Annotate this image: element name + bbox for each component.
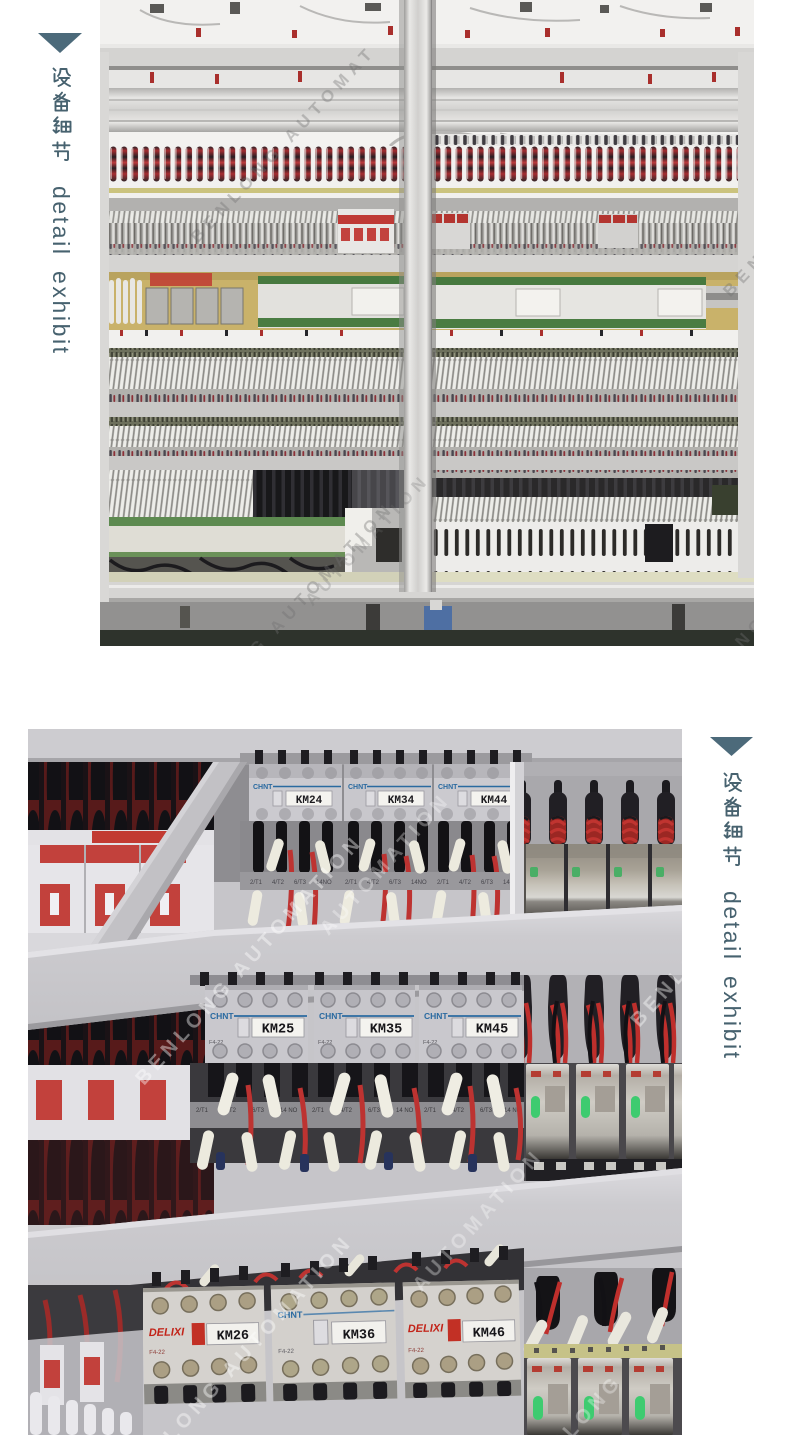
svg-text:CHNT: CHNT: [424, 1011, 448, 1021]
svg-text:CHNT: CHNT: [348, 784, 368, 791]
svg-text:6/T3: 6/T3: [480, 1108, 493, 1114]
svg-text:KM35: KM35: [370, 1023, 402, 1038]
svg-text:6/T3: 6/T3: [252, 1108, 265, 1114]
svg-text:F4-22: F4-22: [149, 1350, 165, 1356]
svg-text:CHNT: CHNT: [438, 784, 458, 791]
svg-text:CHNT: CHNT: [319, 1011, 343, 1021]
svg-text:KM46: KM46: [473, 1326, 506, 1342]
svg-text:KM25: KM25: [262, 1023, 294, 1038]
svg-text:DELIXI: DELIXI: [149, 1326, 186, 1339]
svg-text:14 NO: 14 NO: [280, 1108, 298, 1114]
svg-text:6/T3: 6/T3: [368, 1108, 381, 1114]
svg-text:2/T1: 2/T1: [312, 1108, 325, 1114]
svg-text:F4-22: F4-22: [408, 1348, 424, 1354]
svg-text:KM24: KM24: [296, 795, 323, 807]
svg-text:KM34: KM34: [388, 795, 415, 807]
svg-text:4/T2: 4/T2: [272, 880, 285, 886]
svg-text:6/T3: 6/T3: [389, 880, 402, 886]
svg-text:14NO: 14NO: [411, 880, 427, 886]
svg-text:CHNT: CHNT: [253, 784, 273, 791]
svg-text:2/T1: 2/T1: [196, 1108, 209, 1114]
svg-text:2/T1: 2/T1: [250, 880, 263, 886]
svg-text:KM44: KM44: [481, 795, 508, 807]
svg-text:6/T3: 6/T3: [481, 880, 494, 886]
svg-text:F4-22: F4-22: [278, 1349, 294, 1355]
svg-text:2/T1: 2/T1: [437, 880, 450, 886]
svg-text:2/T1: 2/T1: [424, 1108, 437, 1114]
svg-text:KM36: KM36: [343, 1328, 376, 1344]
svg-text:KM45: KM45: [476, 1023, 508, 1038]
svg-text:4/T2: 4/T2: [459, 880, 472, 886]
svg-text:DELIXI: DELIXI: [408, 1322, 445, 1335]
svg-text:14 NO: 14 NO: [396, 1108, 414, 1114]
